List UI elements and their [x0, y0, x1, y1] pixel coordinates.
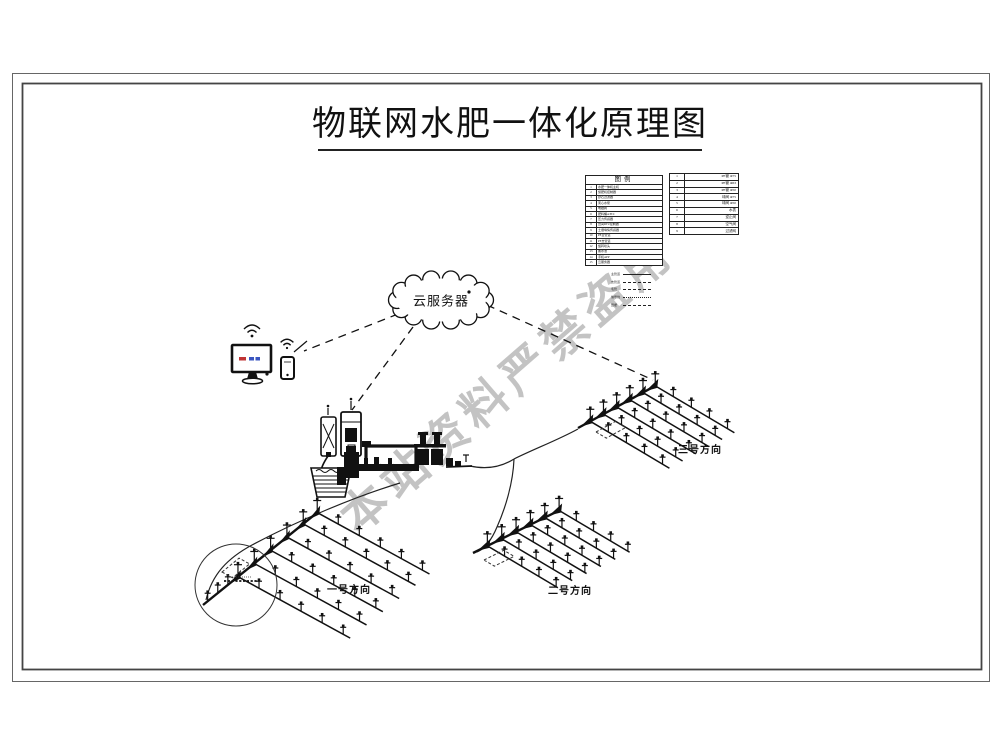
legend-title: 图例 — [586, 176, 663, 185]
legend-row: 9过滤网 — [670, 228, 739, 235]
line-type-row: 主管道 — [611, 271, 651, 279]
field-2-grid — [473, 496, 631, 588]
supply-pipelines — [206, 429, 578, 600]
line-type-label: 主管道 — [611, 273, 623, 276]
legend-row: 5球阀 Φ50 — [670, 201, 739, 208]
line-type-row: 毛管 — [611, 286, 651, 294]
legend-row: 1PE管 Φ75 — [670, 174, 739, 181]
line-type-sample — [623, 274, 651, 275]
title-underline — [318, 149, 702, 151]
legend-row: 3PE管 Φ50 — [670, 187, 739, 194]
monitor-icon — [232, 325, 271, 384]
legend-row: 6水表 — [670, 207, 739, 214]
legend-row: 15云服务器 — [586, 260, 663, 265]
line-type-sample — [623, 297, 651, 298]
fertigation-machine — [311, 398, 472, 497]
line-type-label: 支管道 — [611, 281, 623, 284]
line-type-sample — [623, 282, 651, 283]
line-type-label: 毛管 — [611, 288, 623, 291]
line-type-sample — [623, 289, 651, 290]
page-title: 物联网水肥一体化原理图 — [312, 96, 708, 145]
legend-row: 2PE管 Φ63 — [670, 180, 739, 187]
line-type-row: 信号线 — [611, 294, 651, 302]
line-type-sample — [623, 305, 651, 306]
legend-row: 8空气阀 — [670, 221, 739, 228]
field-1-grid — [203, 498, 429, 638]
detail-circle — [195, 544, 277, 626]
drawing-sheet: 本站资料严禁盗用 物联网水肥一体化原理图 云服务器 图例 1水肥一体机主机2施肥… — [0, 0, 1000, 750]
field-1-label: 一号方向 — [327, 581, 371, 596]
legend-header-row: 图例 — [586, 176, 663, 185]
sheet-frame — [13, 74, 990, 682]
legend-line-types: 主管道支管道毛管信号线田埂 — [611, 271, 651, 309]
field-2-label: 二号方向 — [548, 582, 592, 597]
cloud-server-label: 云服务器 — [413, 291, 469, 310]
line-type-row: 支管道 — [611, 279, 651, 287]
field-3-label: 三号方向 — [678, 441, 722, 456]
line-type-row: 田埂 — [611, 301, 651, 309]
phone-icon — [281, 339, 307, 379]
legend-table-pipes: 1PE管 Φ752PE管 Φ633PE管 Φ504球阀 Φ755球阀 Φ506水… — [669, 173, 739, 235]
legend-row: 7逆止阀 — [670, 214, 739, 221]
legend-row: 4球阀 Φ75 — [670, 194, 739, 201]
wireless-links — [304, 305, 653, 410]
line-type-label: 信号线 — [611, 296, 623, 299]
line-type-label: 田埂 — [611, 304, 623, 307]
legend-table-main: 图例 1水肥一体机主机2施肥机控制器3砂石过滤器4离心水泵5电磁阀6肥料桶A/B… — [585, 175, 663, 266]
